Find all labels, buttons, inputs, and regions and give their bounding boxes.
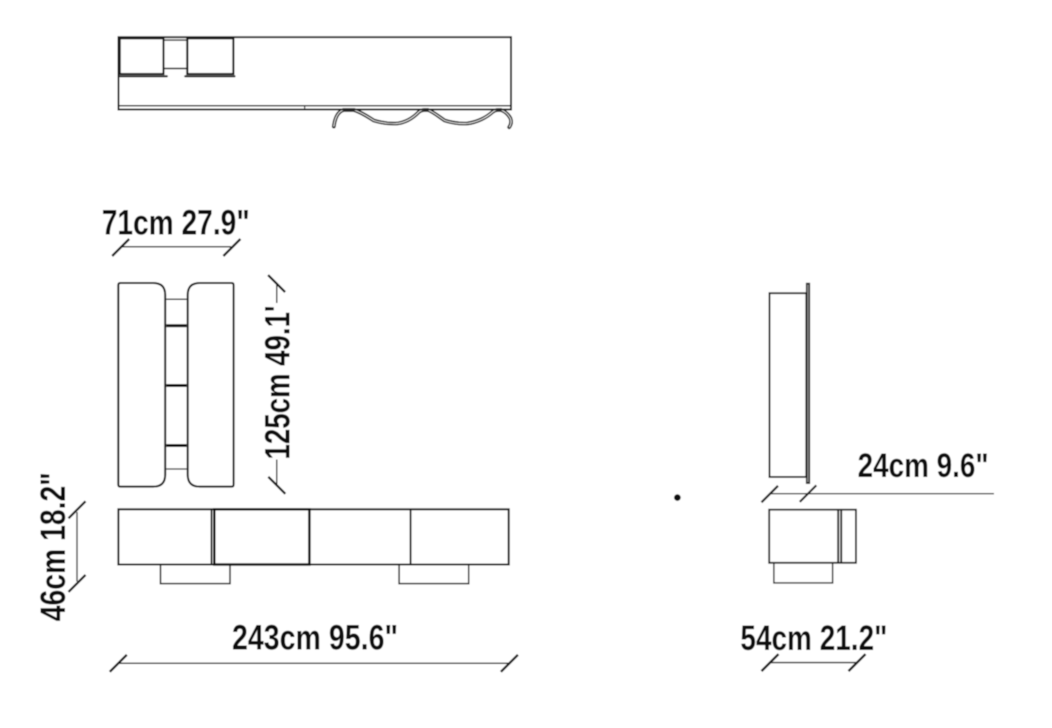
svg-text:46cm 18.2": 46cm 18.2" [34, 472, 73, 621]
svg-text:71cm 27.9": 71cm 27.9" [102, 204, 250, 243]
svg-text:24cm 9.6": 24cm 9.6" [858, 447, 989, 485]
svg-text:54cm 21.2": 54cm 21.2" [740, 619, 887, 658]
svg-text:125cm 49.1': 125cm 49.1' [259, 306, 298, 460]
svg-text:243cm 95.6": 243cm 95.6" [232, 618, 398, 657]
